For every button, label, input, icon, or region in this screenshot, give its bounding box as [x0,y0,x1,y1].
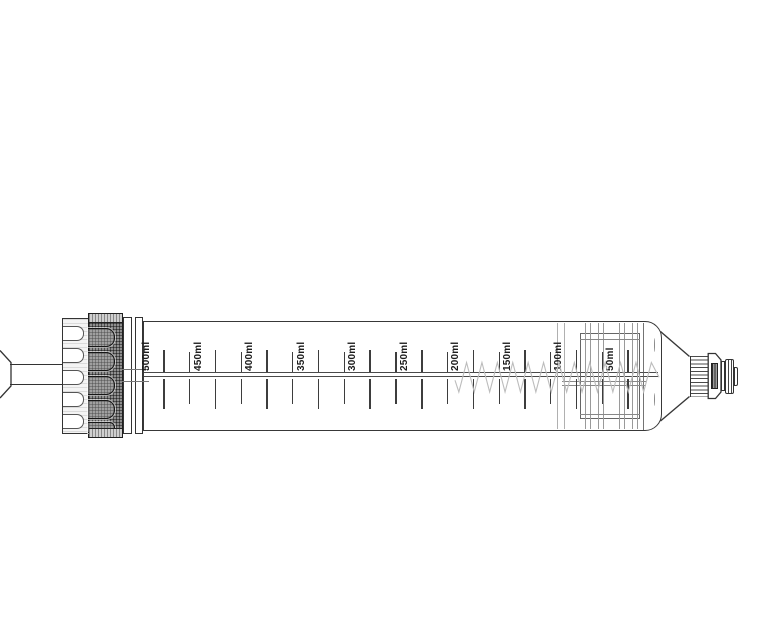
scale-minor-tick-above [550,352,551,373]
cap-rib [63,348,84,363]
scale-label: 450ml [193,337,204,371]
tip-end-face [734,367,738,386]
nozzle-threads [690,356,709,398]
scale-minor-tick-below [550,379,551,404]
cap-rib [63,326,84,341]
cap-grip-slot [88,400,115,419]
scale-minor-tick-below [292,379,293,404]
scale-minor-tick-above [447,352,448,373]
scale-label: 100ml [553,337,564,371]
cap-grip-slot [88,328,115,347]
scale-label: 400ml [244,337,255,371]
dome-highlight-line [654,393,655,407]
scale-label: 350ml [296,337,307,371]
scale-major-tick-below [266,379,268,409]
scale-minor-tick-below [241,379,242,404]
scale-major-tick-above [163,350,165,372]
scale-minor-tick-above [292,352,293,373]
scale-major-tick-above [576,350,578,372]
cap-grip-slot [88,422,115,433]
scale-major-tick-below [421,379,423,409]
scale-label: 250ml [399,337,410,371]
scale-major-tick-below [524,379,526,409]
barrel-dome-edge-line [643,323,644,430]
cap-rib [63,392,84,407]
scale-label: 200ml [450,337,461,371]
scale-major-tick-below [215,379,217,409]
scale-minor-tick-above [602,352,603,373]
scale-major-tick-above [266,350,268,372]
scale-minor-tick-above [395,352,396,373]
scale-major-tick-above [473,350,475,372]
scale-label: 300ml [347,337,358,371]
scale-minor-tick-below [602,379,603,404]
piston-band-line [562,381,646,382]
rod-hidden-line [122,381,149,382]
scale-major-tick-above [318,350,320,372]
scale-label: 50ml [605,337,616,371]
plunger-rod [10,364,63,386]
scale-minor-tick-above [344,352,345,373]
tip-cap-ridged [725,359,735,394]
barrel-hairline [564,323,565,429]
scale-minor-tick-below [395,379,396,404]
scale-minor-tick-above [241,352,242,373]
scale-major-tick-above [215,350,217,372]
piston-band-line [562,385,646,386]
scale-major-tick-above [369,350,371,372]
scale-major-tick-above [627,350,629,372]
cap-flange-ring [135,317,143,434]
drawing-canvas: 500ml450ml400ml350ml300ml250ml200ml150ml… [0,0,778,640]
nozzle-core-hatched [711,363,718,389]
scale-major-tick-below [163,379,165,409]
end-cap-knurled-section [88,313,123,438]
end-cap-ribbed-section [62,318,89,434]
scale-label: 150ml [502,337,513,371]
dome-highlight-line [654,338,655,352]
piston-edge-line [580,414,640,415]
scale-major-tick-below [576,379,578,409]
nozzle-step-ring [721,361,725,391]
scale-minor-tick-below [499,379,500,404]
scale-major-tick-below [473,379,475,409]
scale-label: 500ml [141,337,152,371]
cap-flange-ring [123,317,132,434]
scale-major-tick-below [318,379,320,409]
scale-minor-tick-below [447,379,448,404]
scale-minor-tick-below [189,379,190,404]
scale-minor-tick-below [344,379,345,404]
cap-rib [63,414,84,429]
scale-major-tick-above [421,350,423,372]
scale-major-tick-below [369,379,371,409]
shoulder-taper-lines [661,332,690,422]
scale-minor-tick-above [499,352,500,373]
scale-minor-tick-above [189,352,190,373]
scale-major-tick-below [627,379,629,409]
scale-major-tick-above [524,350,526,372]
cap-grip-slot [88,376,115,395]
cap-grip-slot [88,352,115,371]
cap-rib [63,370,84,385]
